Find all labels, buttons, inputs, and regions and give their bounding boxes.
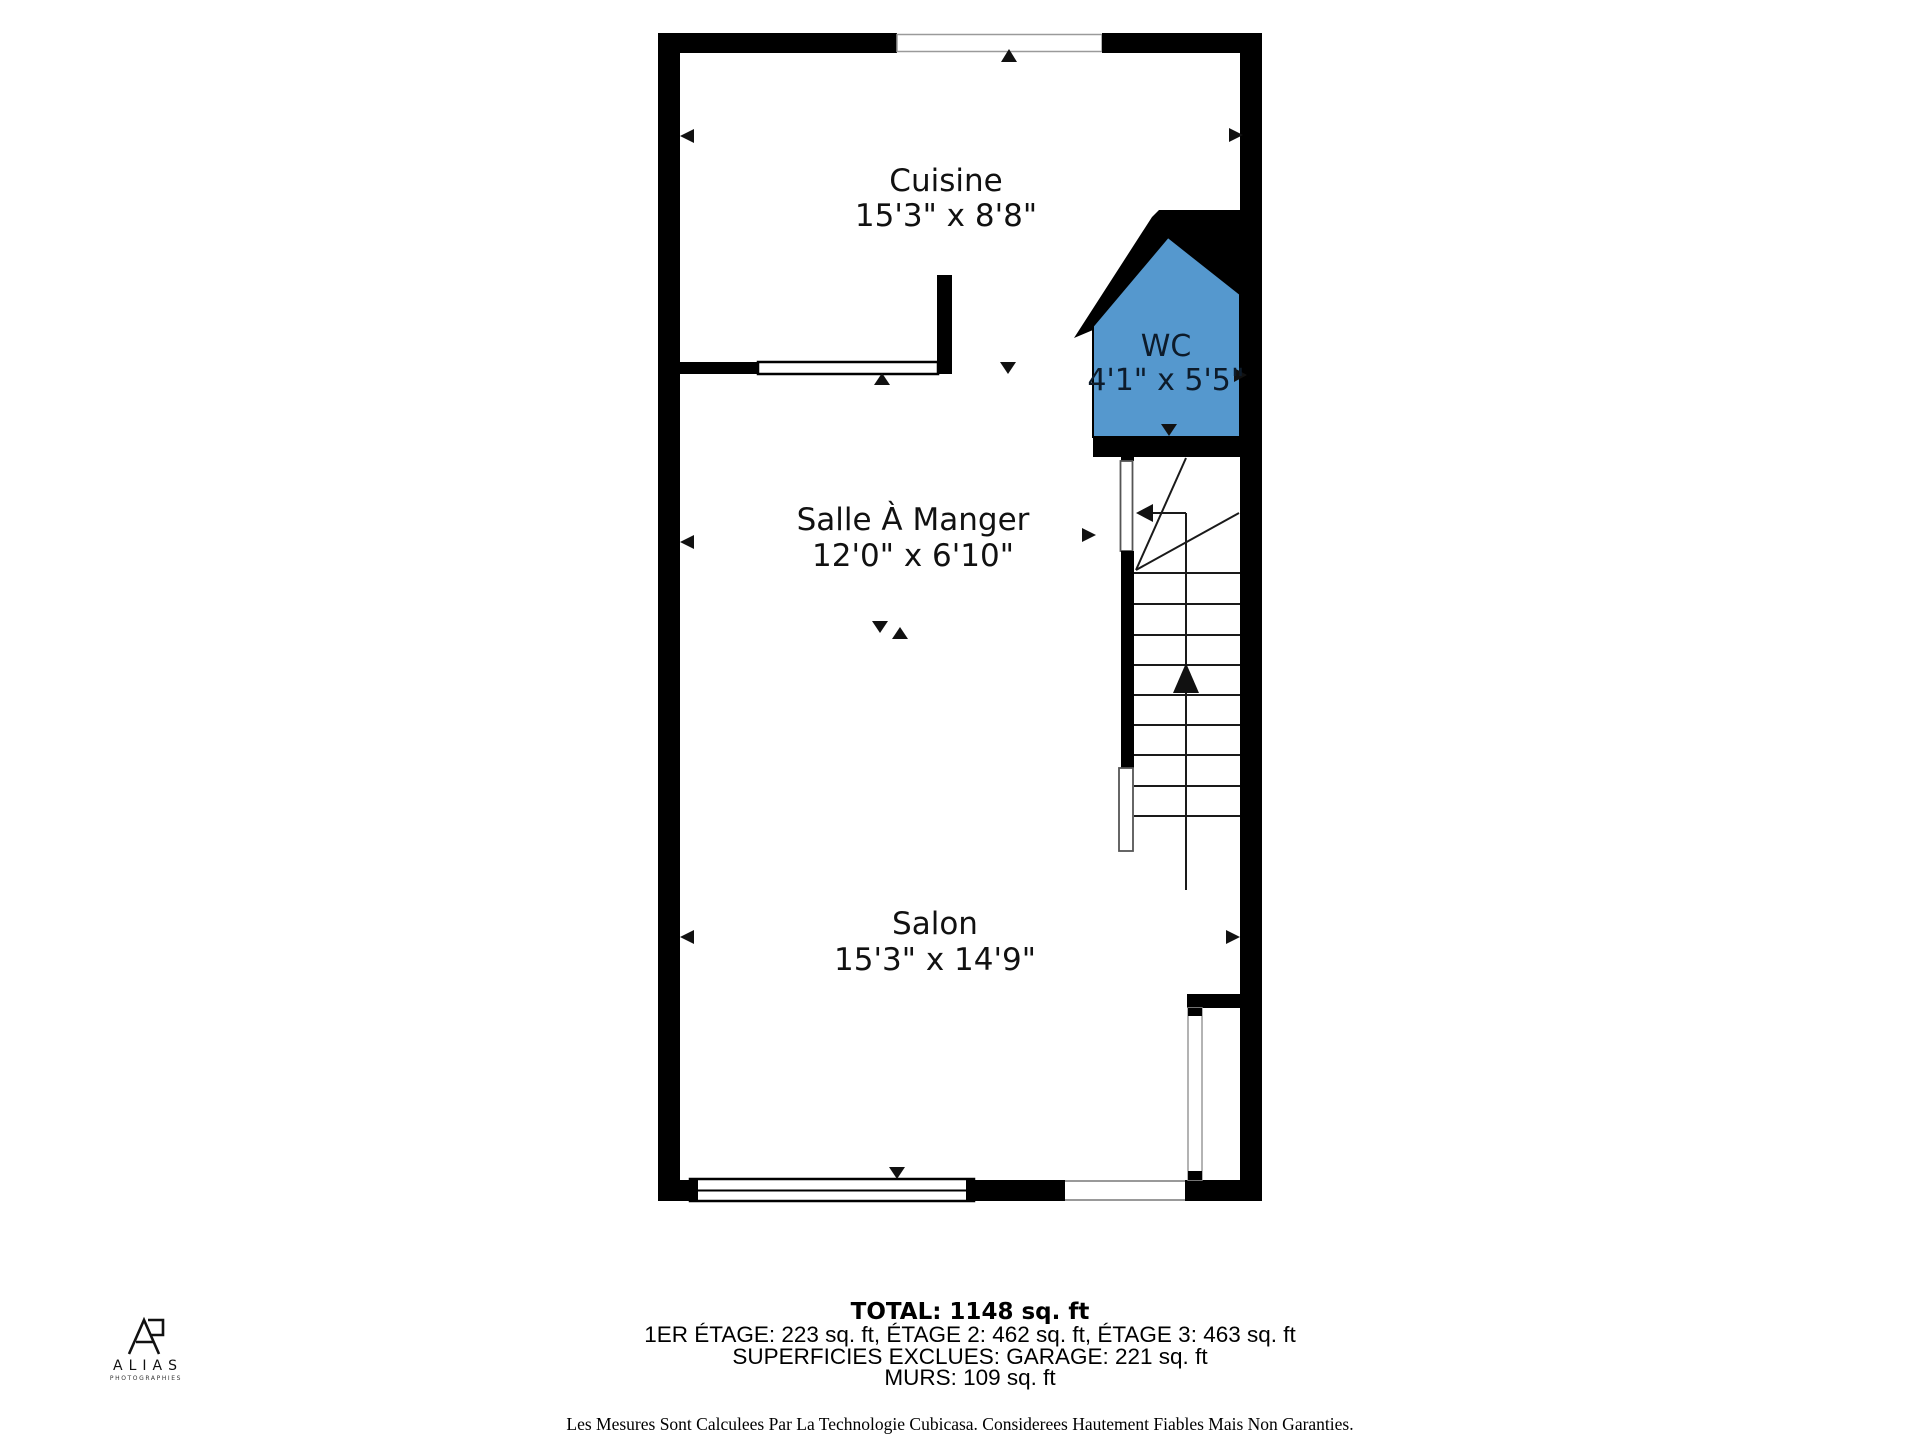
salle-a-manger-dims: 12'0" x 6'10" [812,538,1014,574]
stair-arrow-left-head [1136,504,1153,522]
entry-door-leaf [1188,1008,1202,1180]
floor-plan: Cuisine 15'3" x 8'8" WC 4'1" x 5'5" Sall… [0,0,1920,1440]
marker-sam-left [680,535,694,549]
total-area: TOTAL: 1148 sq. ft [10,1301,1920,1324]
stair-wall-left [1121,551,1134,768]
alias-monogram-icon [103,1316,187,1356]
counter-pass-through [758,362,938,374]
floor-areas: 1ER ÉTAGE: 223 sq. ft, ÉTAGE 2: 462 sq. … [10,1324,1920,1346]
wall-right [1240,33,1262,1201]
stair-wall-top-stub [1121,449,1134,461]
marker-salon-left [680,930,694,944]
logo-subtitle: PHOTOGRAPHIES [103,1375,187,1382]
area-summary: TOTAL: 1148 sq. ft 1ER ÉTAGE: 223 sq. ft… [10,1301,1920,1389]
excluded-areas: SUPERFICIES EXCLUES: GARAGE: 221 sq. ft [10,1346,1920,1368]
cuisine-label: Cuisine [889,163,1002,199]
disclaimer-text: Les Mesures Sont Calculees Par La Techno… [0,1414,1920,1435]
entry-door-leaf-cap-bottom [1188,1171,1202,1180]
divider-wall [680,362,758,374]
marker-sam-bottom [872,621,888,633]
wc-door-leaf [1121,461,1133,551]
marker-salon-top [892,627,908,639]
marker-cuisine-bottom [1000,362,1016,374]
stair-enclosure [1119,449,1134,851]
marker-salon-right [1226,930,1240,944]
cuisine-dims: 15'3" x 8'8" [855,198,1037,234]
wall-top-left-segment [658,33,897,53]
entry-door [1187,994,1240,1180]
kitchen-divider [680,275,952,374]
entry-door-leaf-cap-top [1188,1008,1202,1016]
wall-left [658,33,680,1201]
salle-a-manger-label: Salle À Manger [797,502,1030,538]
window-cap-right [966,1179,974,1201]
stair-arrow-up-head [1173,663,1199,693]
salon-dims: 15'3" x 14'9" [834,942,1036,978]
wall-top-right-segment [1102,33,1262,53]
divider-stub-wall [937,275,952,374]
marker-cuisine-left [680,129,694,143]
wall-bottom-right-segment [1185,1180,1262,1201]
wall-bottom-mid-segment [974,1180,1065,1201]
salon-label: Salon [892,906,978,942]
entry-door-stub-wall [1187,994,1240,1008]
alias-logo: ALIAS PHOTOGRAPHIES [103,1316,187,1382]
wc-dims: 4'1" x 5'5" [1087,363,1244,398]
salon-window [690,1179,974,1201]
monogram-a [129,1320,159,1354]
wall-bottom-left-corner [658,1180,690,1201]
marker-salon-bottom [889,1167,905,1179]
marker-sam-right [1082,528,1096,542]
staircase [1134,458,1240,890]
stair-winder-edge [1136,513,1239,570]
window-cap-left [690,1179,698,1201]
wall-area: MURS: 109 sq. ft [10,1367,1920,1389]
logo-name: ALIAS [103,1358,187,1374]
wc-label: WC [1141,329,1192,364]
top-wall-opening [897,35,1102,52]
stair-railing [1119,768,1133,851]
